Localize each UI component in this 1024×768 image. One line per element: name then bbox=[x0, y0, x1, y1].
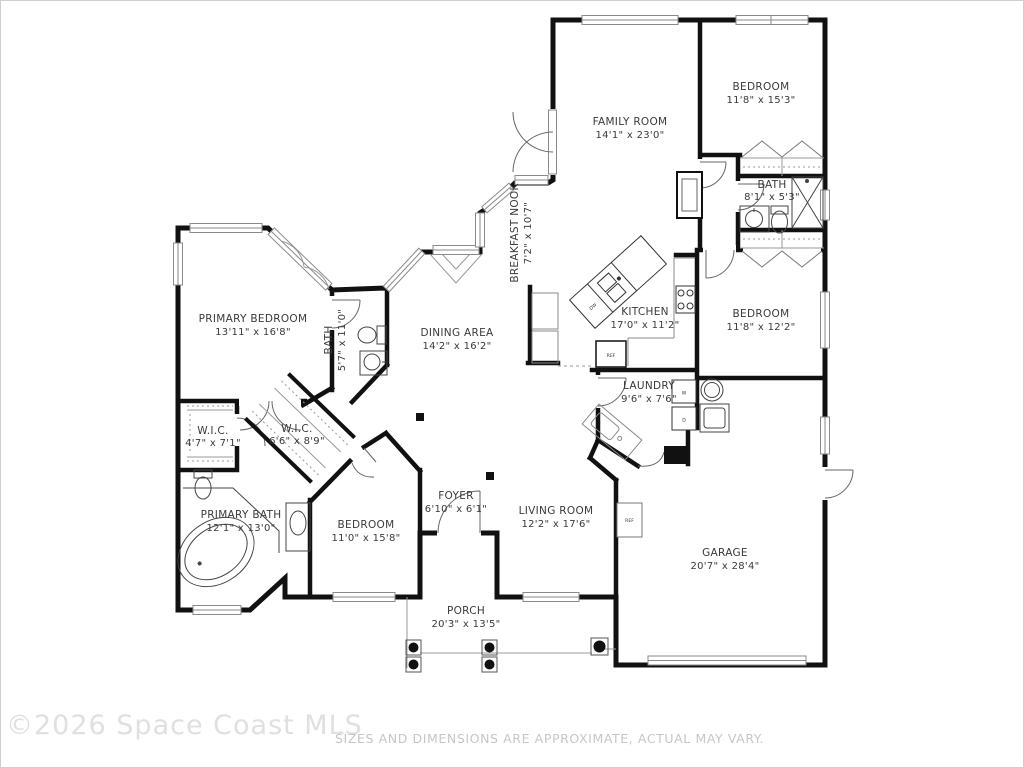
bifold-doors-bedroom1 bbox=[742, 141, 822, 157]
room-label-bedroom-3: BEDROOM11'0" x 15'8" bbox=[331, 519, 400, 544]
range bbox=[676, 286, 695, 313]
porch-columns bbox=[406, 638, 608, 672]
disclaimer-text: SIZES AND DIMENSIONS ARE APPROXIMATE, AC… bbox=[335, 731, 764, 746]
refrigerator: REF bbox=[596, 341, 626, 367]
svg-text:D: D bbox=[682, 418, 686, 424]
water-heater bbox=[664, 446, 688, 464]
room-label-family-room: FAMILY ROOM14'1" x 23'0" bbox=[593, 116, 668, 141]
room-label-garage: GARAGE20'7" x 28'4" bbox=[690, 547, 759, 572]
room-label-primary-bedroom: PRIMARY BEDROOM13'11" x 16'8" bbox=[199, 313, 308, 338]
pantry-shelves bbox=[532, 293, 558, 329]
svg-text:REF: REF bbox=[625, 518, 634, 524]
toilet bbox=[194, 470, 212, 499]
garage-refrigerator: REF bbox=[617, 503, 642, 537]
bath-fixtures bbox=[165, 177, 823, 601]
room-label-porch: PORCH20'3" x 13'5" bbox=[431, 605, 500, 630]
svg-text:REF: REF bbox=[607, 353, 616, 359]
room-label-foyer: FOYER6'10" x 6'1" bbox=[425, 490, 487, 515]
room-label-kitchen: KITCHEN17'0" x 11'2" bbox=[610, 306, 679, 331]
room-label-living-room: LIVING ROOM12'2" x 17'6" bbox=[519, 505, 594, 530]
toilet bbox=[358, 326, 386, 344]
vanity-sink bbox=[286, 503, 310, 551]
porch-structure bbox=[406, 597, 616, 672]
svg-text:W: W bbox=[682, 391, 687, 397]
mls-watermark: ©2026 Space Coast MLS bbox=[6, 710, 363, 741]
room-label-breakfast-nook: BREAKFAST NOOK7'2" x 10'7" bbox=[509, 183, 534, 283]
room-label-dining-area: DINING AREA14'2" x 16'2" bbox=[420, 327, 494, 352]
room-label-bedroom-1: BEDROOM11'8" x 15'3" bbox=[726, 81, 795, 106]
room-label-laundry: LAUNDRY9'6" x 7'6" bbox=[621, 380, 677, 405]
dryer: D bbox=[672, 407, 696, 430]
french-doors bbox=[513, 112, 553, 172]
bay-window-marks bbox=[430, 254, 482, 283]
room-label-bedroom-2: BEDROOM11'8" x 12'2" bbox=[726, 308, 795, 333]
fireplace bbox=[677, 172, 702, 218]
floor-plan-page: DW REF W D REF bbox=[0, 0, 1024, 768]
floor-plan-canvas: DW REF W D REF bbox=[0, 0, 1024, 768]
bathtub bbox=[165, 488, 279, 601]
structural-columns bbox=[416, 413, 494, 480]
room-label-wic-2: W.I.C.6'6" x 8'9" bbox=[269, 423, 325, 447]
utility-sink bbox=[700, 379, 729, 432]
